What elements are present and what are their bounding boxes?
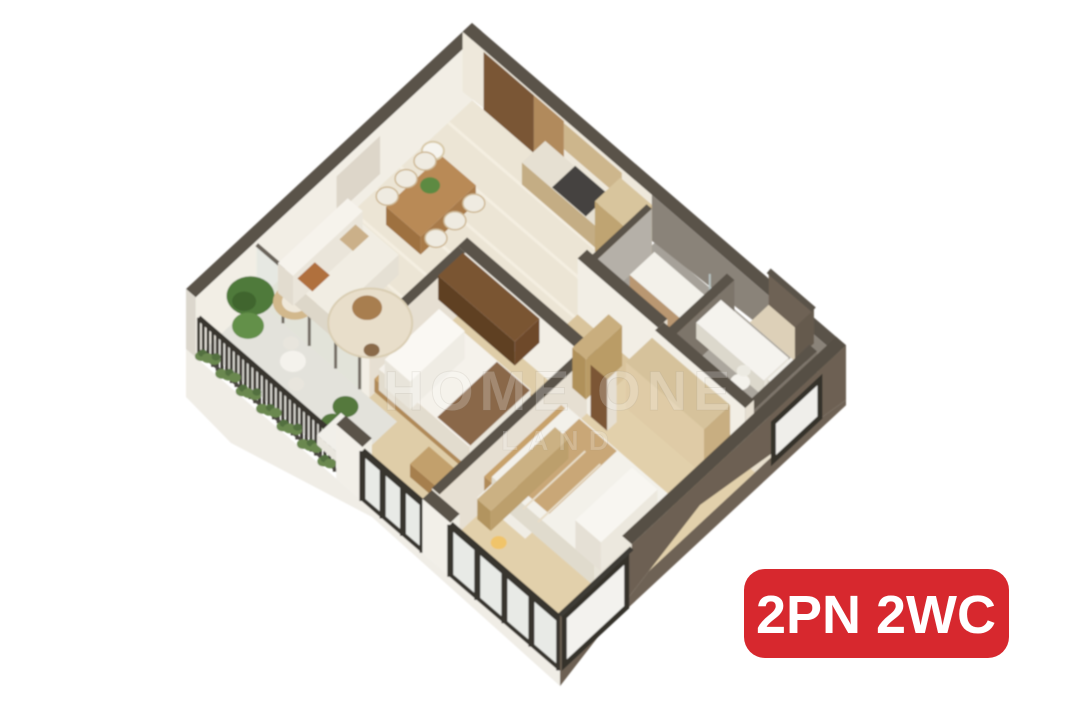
svg-text:LAND: LAND [501,425,619,456]
svg-text:HOME ONE: HOME ONE [384,359,737,422]
svg-text:2PN 2WC: 2PN 2WC [756,585,996,645]
